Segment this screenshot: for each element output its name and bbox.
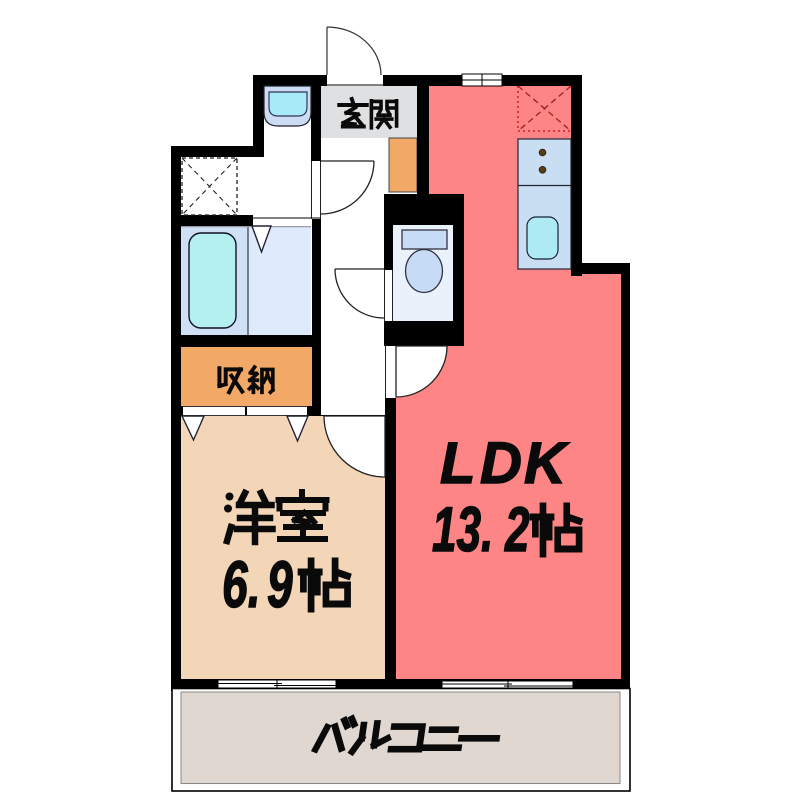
svg-text:D: D <box>480 431 522 496</box>
svg-text:L: L <box>440 431 475 496</box>
svg-text:9: 9 <box>267 548 293 622</box>
svg-text:6.: 6. <box>222 548 261 622</box>
svg-text:2: 2 <box>504 494 529 565</box>
svg-text:13.: 13. <box>432 494 493 565</box>
svg-text:K: K <box>524 431 570 496</box>
